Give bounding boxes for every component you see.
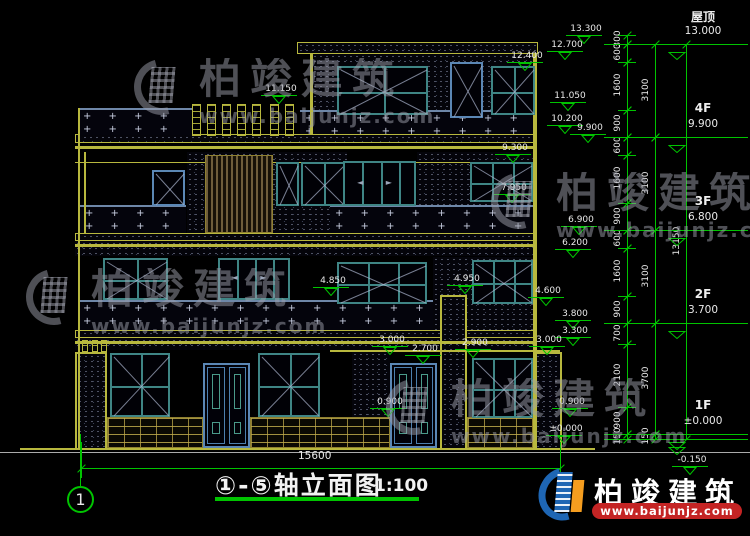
louver-screen — [205, 155, 273, 233]
floor-elevation: ±0.000 — [660, 415, 746, 427]
elevation-value: 11.150 — [261, 84, 301, 94]
elevation-marker: 11.050 — [550, 91, 590, 111]
elevation-value: 6.900 — [561, 215, 601, 225]
level-triangle-icon — [668, 138, 686, 147]
dim-value: 1600 — [613, 161, 623, 195]
window — [337, 66, 428, 115]
elevation-triangle-icon — [416, 356, 456, 364]
structure-line — [84, 152, 86, 233]
window — [491, 66, 535, 115]
elevation-value: 0.900 — [370, 397, 410, 407]
door-leaf — [416, 367, 434, 444]
railing-post — [82, 340, 88, 352]
structure-line — [310, 54, 313, 134]
elevation-triangle-icon — [572, 227, 612, 235]
dim-value: 2100 — [613, 358, 623, 392]
parapet-plus-band: + + + + + + + + + + + + + + + + + + + + … — [80, 205, 186, 233]
elevation-marker: 6.900 — [561, 215, 601, 235]
dim-chain-line — [655, 44, 656, 439]
elevation-triangle-icon — [558, 52, 598, 60]
slider-arrows-icon: ◄ ► — [220, 273, 288, 282]
railing-post — [92, 340, 98, 352]
floor-name: 3F — [660, 194, 746, 208]
elevation-value: 12.700 — [547, 40, 587, 50]
window — [103, 258, 168, 300]
window — [276, 162, 299, 206]
elevation-marker: 6.200 — [555, 238, 595, 258]
elevation-value: 3.000 — [529, 335, 569, 345]
railing-post — [285, 104, 294, 136]
elevation-value: 12.400 — [507, 51, 547, 61]
elevation-value: 13.300 — [566, 24, 606, 34]
elevation-triangle-icon — [506, 155, 546, 163]
brick-dado — [107, 417, 203, 448]
level-triangle-icon — [668, 440, 686, 449]
elevation-value: -0.150 — [672, 455, 712, 465]
window — [301, 162, 345, 206]
elevation-marker: 2.700 — [405, 344, 445, 364]
floor-name: 2F — [660, 287, 746, 301]
elevation-value: 4.600 — [528, 286, 568, 296]
structure-line — [330, 350, 560, 352]
elevation-triangle-icon — [458, 286, 498, 294]
drawing-scale: 1:100 — [374, 476, 428, 496]
axis-line — [80, 434, 81, 486]
title-underline — [215, 497, 419, 501]
slider-arrows-icon: ◄ ► — [345, 178, 414, 187]
elevation-value: 11.050 — [550, 91, 590, 101]
elevation-value: 0.900 — [552, 397, 592, 407]
elevation-marker: 12.400 — [507, 51, 547, 71]
structure-line — [78, 108, 80, 448]
elevation-marker: 4.950 — [447, 274, 487, 294]
elevation-triangle-icon — [566, 250, 606, 258]
brick-dado — [467, 417, 533, 448]
dim-value: 600 — [613, 221, 623, 255]
entry-door — [203, 363, 250, 448]
elevation-value: 2.900 — [455, 338, 495, 348]
elevation-value: 7.950 — [494, 183, 534, 193]
dim-chain-line — [627, 35, 628, 439]
elevation-marker: ±0.000 — [546, 424, 586, 444]
elevation-value: 6.200 — [555, 238, 595, 248]
elevation-value: 2.700 — [405, 344, 445, 354]
elevation-triangle-icon — [324, 288, 364, 296]
brick-dado — [250, 417, 390, 448]
axis-grid-bubble: 1 — [67, 486, 94, 513]
watermark-logo-icon — [25, 268, 83, 326]
elevation-value: 4.850 — [313, 276, 353, 286]
elevation-triangle-icon — [539, 298, 579, 306]
dim-value: 600 — [613, 35, 623, 69]
window: ◄ ► — [218, 258, 290, 300]
parapet-plus-band: + + + + + + + + + + + + + + + + + + + + … — [78, 108, 192, 135]
wall-stipple — [297, 42, 538, 54]
dim-value: 3100 — [641, 166, 651, 200]
window — [258, 353, 320, 417]
dim-value: 150 — [641, 419, 651, 453]
window — [110, 353, 170, 417]
wall-stipple — [75, 330, 537, 338]
window: ◄ ► — [343, 161, 416, 206]
floor-elevation: 6.800 — [660, 211, 746, 223]
elevation-value: 3.800 — [555, 309, 595, 319]
wall-stipple — [75, 134, 537, 143]
elevation-triangle-icon — [557, 436, 597, 444]
window — [450, 62, 483, 118]
elevation-triangle-icon — [563, 409, 603, 417]
window — [152, 170, 185, 206]
elevation-triangle-icon — [540, 347, 580, 355]
elevation-marker: 7.950 — [494, 183, 534, 203]
overall-dim-value: 15600 — [298, 450, 331, 462]
dim-extension-line — [81, 442, 82, 478]
door-leaf — [207, 367, 225, 444]
elevation-triangle-icon — [381, 409, 421, 417]
elevation-marker: 0.900 — [552, 397, 592, 417]
elevation-marker: 0.900 — [370, 397, 410, 417]
railing-post — [101, 340, 107, 352]
axis-number: 1 — [75, 490, 85, 509]
level-triangle-icon — [668, 45, 686, 54]
elevation-value: 9.900 — [570, 123, 610, 133]
elevation-triangle-icon — [518, 63, 558, 71]
elevation-triangle-icon — [466, 350, 506, 358]
elevation-triangle-icon — [561, 103, 601, 111]
elevation-marker: 9.900 — [570, 123, 610, 143]
dim-value: 150 — [613, 419, 623, 453]
railing-post — [192, 104, 201, 136]
elevation-marker: 2.900 — [455, 338, 495, 358]
floor-name: 4F — [660, 101, 746, 115]
window — [472, 358, 533, 418]
level-triangle-icon — [668, 324, 686, 333]
railing-post — [237, 104, 246, 136]
brand-url: www.baijunjz.com — [592, 503, 742, 519]
parapet-plus-band: + + + + + + + + + + + + + + + + + + + + … — [330, 205, 537, 233]
cad-elevation-canvas: + + + + + + + + + + + + + + + + + + + + … — [0, 0, 750, 536]
elevation-triangle-icon — [272, 96, 312, 104]
railing-post — [207, 104, 216, 136]
floor-name: 屋顶 — [660, 8, 746, 25]
door-leaf — [229, 367, 247, 444]
floor-name: 1F — [660, 398, 746, 412]
floor-elevation: 9.900 — [660, 118, 746, 130]
railing-post — [252, 104, 261, 136]
elevation-marker: 9.300 — [495, 143, 535, 163]
railing-post — [222, 104, 231, 136]
level-triangle-icon — [668, 231, 686, 240]
dim-value: 1600 — [613, 68, 623, 102]
dim-value: 3100 — [641, 259, 651, 293]
elevation-triangle-icon — [505, 195, 545, 203]
masonry-pier — [440, 295, 467, 448]
floor-elevation: 13.000 — [660, 25, 746, 37]
ground-line — [0, 452, 750, 453]
dim-value: 600 — [613, 128, 623, 162]
elevation-marker: 4.600 — [528, 286, 568, 306]
structure-line — [75, 244, 537, 247]
elevation-marker: 11.150 — [261, 84, 301, 104]
brand-logo-icon — [538, 466, 590, 522]
dim-value: 1600 — [613, 254, 623, 288]
elevation-value: 4.950 — [447, 274, 487, 284]
dim-value: 3700 — [641, 361, 651, 395]
floor-elevation: 3.700 — [660, 304, 746, 316]
elevation-marker: 4.850 — [313, 276, 353, 296]
railing-post — [270, 104, 279, 136]
dim-value: 3100 — [641, 73, 651, 107]
elevation-marker: 3.000 — [529, 335, 569, 355]
elevation-value: 9.300 — [495, 143, 535, 153]
elevation-triangle-icon — [566, 338, 606, 346]
elevation-value: ±0.000 — [546, 424, 586, 434]
wall-stipple — [75, 233, 537, 241]
structure-line — [75, 146, 537, 149]
elevation-marker: 12.700 — [547, 40, 587, 60]
